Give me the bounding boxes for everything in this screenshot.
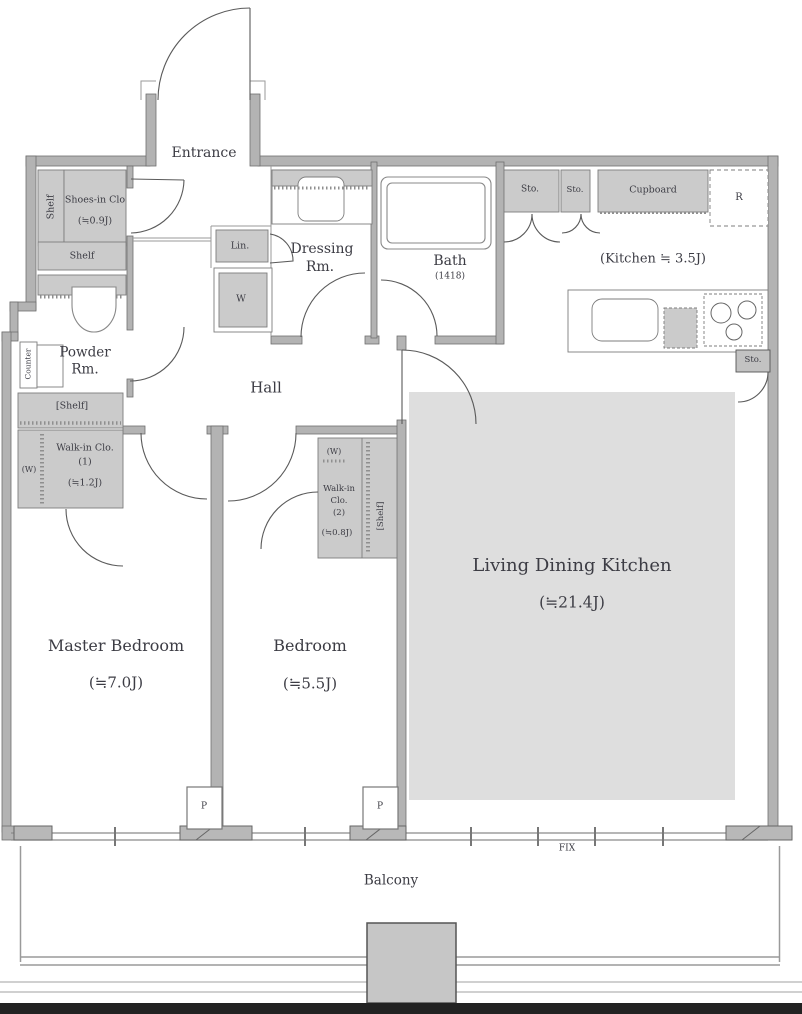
label-balcony: Balcony [364, 874, 418, 888]
label-kitchen: (Kitchen ≒ 3.5J) [600, 253, 706, 266]
label-storage-a: Sto. [521, 186, 539, 195]
label-wic2: Walk-in [323, 485, 355, 494]
dressing-door-arc [301, 273, 365, 337]
label-counter: Counter [24, 349, 32, 380]
storage-a-door-arc2 [532, 214, 560, 242]
label-shelf: Shelf [70, 251, 95, 261]
bath-door-arc [381, 280, 437, 336]
label-wic1-w: (W) [22, 466, 36, 474]
pillars [187, 787, 398, 829]
dressing-sink [298, 177, 344, 221]
kitchen-sink [592, 299, 658, 341]
wic1-door-arc [66, 509, 123, 566]
balcony-hatch-box [367, 923, 456, 1003]
label-bath: Bath [433, 254, 466, 268]
label-powder-room-2: Rm. [71, 363, 98, 377]
label-wic1-number: (1) [78, 457, 91, 467]
label-washer: W [236, 294, 246, 304]
label-fix-window: FIX [559, 845, 575, 854]
label-bath-size: (1418) [435, 273, 465, 282]
floor-plan: Entrance Shelf Shoes-in Clo (≒0.9J) Shel… [0, 0, 802, 1014]
label-shoes-closet: Shoes-in Clo [65, 195, 125, 205]
label-bedroom: Bedroom [273, 638, 347, 654]
label-entrance: Entrance [171, 146, 236, 160]
label-storage-b: Sto. [567, 186, 584, 195]
label-wic2-size: (≒0.8J) [322, 529, 353, 538]
label-pillar-1: P [201, 803, 207, 812]
label-master-bedroom-size: (≒7.0J) [89, 676, 143, 691]
label-linen: Lin. [231, 241, 250, 251]
label-dressing-room-2: Rm. [306, 260, 334, 274]
bottom-boundary-bar [0, 1003, 802, 1014]
storage-a-door-arc [504, 214, 532, 242]
entrance-door-arc [158, 8, 250, 100]
label-bedroom-size: (≒5.5J) [283, 677, 337, 692]
floor-plan-drawing [0, 0, 802, 1014]
shoes-closet-door-arc [131, 180, 184, 233]
label-wic2-2: Clo. [331, 497, 348, 506]
label-refrigerator: R [735, 193, 743, 203]
storage-b-door-arc2 [581, 214, 600, 233]
label-wic2-number: (2) [333, 509, 345, 518]
shoes-in-closet [64, 170, 126, 246]
label-ldk-size: (≒21.4J) [539, 595, 605, 611]
label-wic1: Walk-in Clo. [56, 443, 114, 453]
storage-b-door-arc [562, 214, 581, 233]
label-wic1-size: (≒1.2J) [68, 478, 102, 488]
window-band [11, 826, 792, 846]
label-ldk: Living Dining Kitchen [472, 557, 671, 575]
toilet [72, 287, 116, 332]
label-dressing-room: Dressing [290, 242, 353, 256]
label-shoes-closet-size: (≒0.9J) [78, 216, 112, 226]
kitchen-appliance [664, 308, 697, 348]
label-storage-side: Sto. [745, 356, 762, 365]
powder-door-arc [130, 327, 184, 381]
bedroom-door-arc [228, 433, 296, 501]
label-shoes-shelf: Shelf [46, 195, 56, 220]
bathtub [381, 177, 491, 249]
storage-side-door-arc [738, 372, 768, 402]
label-wic2-w: (W) [327, 448, 341, 456]
label-hall: Hall [250, 381, 282, 396]
wic2-door-arc [261, 492, 318, 549]
label-pillar-2: P [377, 803, 383, 812]
label-wic2-shelf: [Shelf] [377, 502, 386, 531]
label-cupboard: Cupboard [629, 185, 677, 195]
label-powder-room: Powder [59, 346, 110, 360]
label-master-bedroom: Master Bedroom [48, 638, 184, 654]
label-wic1-shelf: [Shelf] [56, 401, 88, 411]
master-bedroom-door-arc [141, 433, 207, 499]
